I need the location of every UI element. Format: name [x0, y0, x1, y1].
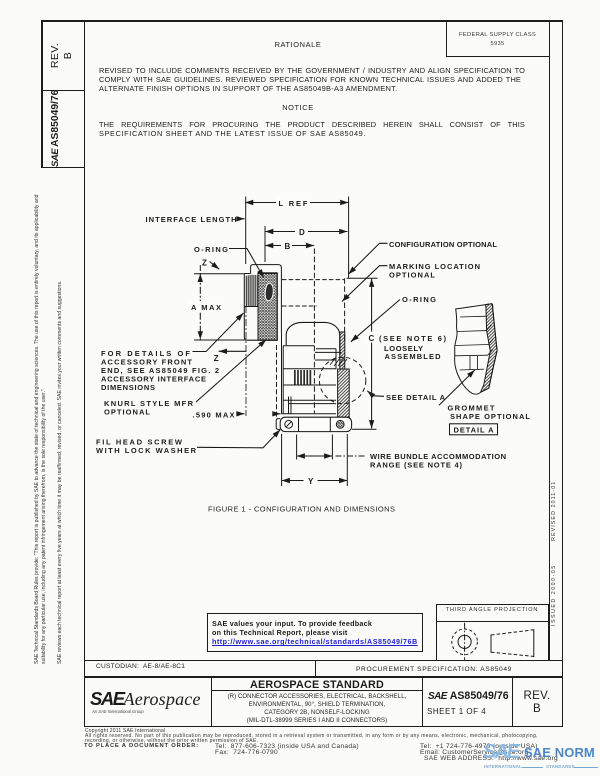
svg-text:SHAPE OPTIONAL: SHAPE OPTIONAL: [450, 412, 530, 421]
svg-text:O-RING: O-RING: [402, 295, 436, 304]
svg-text:(SEE NOTE 6): (SEE NOTE 6): [379, 334, 447, 343]
svg-text:FIGURE 1 - CONFIGURATION AND D: FIGURE 1 - CONFIGURATION AND DIMENSIONS: [208, 504, 395, 513]
svg-text:RANGE (SEE NOTE 4): RANGE (SEE NOTE 4): [370, 461, 463, 470]
svg-text:A MAX: A MAX: [191, 303, 221, 312]
svg-text:L REF: L REF: [279, 199, 308, 208]
svg-text:DIMENSIONS: DIMENSIONS: [101, 383, 155, 392]
svg-text:ASSEMBLED: ASSEMBLED: [385, 352, 442, 361]
svg-text:DETAIL A: DETAIL A: [454, 426, 495, 435]
svg-text:Z: Z: [202, 259, 207, 268]
svg-text:B: B: [285, 242, 291, 251]
svg-text:Y: Y: [308, 477, 314, 486]
svg-text:.590 MAX: .590 MAX: [193, 410, 235, 419]
svg-text:Z: Z: [214, 354, 219, 363]
svg-text:INTERFACE LENGTH: INTERFACE LENGTH: [146, 215, 237, 224]
svg-text:D: D: [299, 228, 305, 237]
svg-text:C: C: [369, 334, 375, 343]
svg-text:WITH LOCK WASHER: WITH LOCK WASHER: [96, 446, 197, 455]
svg-text:CONFIGURATION OPTIONAL: CONFIGURATION OPTIONAL: [389, 240, 497, 249]
svg-text:OPTIONAL: OPTIONAL: [104, 407, 150, 416]
svg-text:SEE DETAIL A: SEE DETAIL A: [386, 393, 446, 402]
svg-text:OPTIONAL: OPTIONAL: [389, 270, 435, 279]
svg-text:O-RING: O-RING: [194, 245, 228, 254]
